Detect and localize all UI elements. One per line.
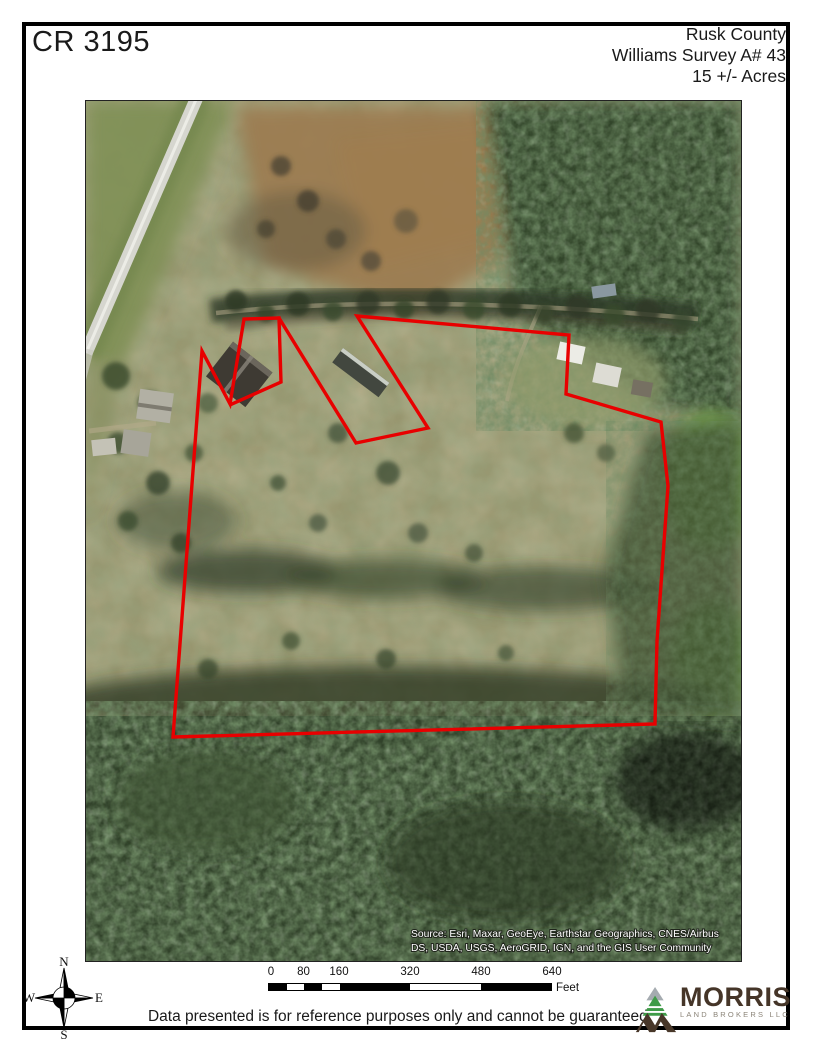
survey-exhibit-page: CR 3195 Rusk County Williams Survey A# 4… bbox=[0, 0, 816, 1056]
scale-bar-labels: 0 80 160 320 480 640 bbox=[268, 966, 568, 981]
survey-label: Williams Survey A# 43 bbox=[612, 45, 786, 66]
attribution-line-2: DS, USDA, USGS, AeroGRID, IGN, and the G… bbox=[411, 943, 712, 954]
forest-right-lower bbox=[606, 421, 741, 721]
forest-bottom bbox=[86, 701, 741, 961]
logo-subtitle: LAND BROKERS LLC bbox=[680, 1010, 791, 1019]
building-small-house bbox=[120, 429, 151, 457]
page-title: CR 3195 bbox=[32, 26, 150, 59]
aerial-map-canvas: Source: Esri, Maxar, GeoEye, Earthstar G… bbox=[86, 101, 741, 961]
disclaimer-text: Data presented is for reference purposes… bbox=[120, 1008, 680, 1026]
compass-w-label: W bbox=[25, 990, 36, 1005]
compass-n-label: N bbox=[59, 956, 69, 969]
mountain-trees-icon bbox=[634, 986, 678, 1034]
attribution-line-1: Source: Esri, Maxar, GeoEye, Earthstar G… bbox=[411, 929, 719, 940]
building-gray-house bbox=[136, 389, 174, 423]
header-info: Rusk County Williams Survey A# 43 15 +/-… bbox=[612, 24, 786, 87]
scale-label-480: 480 bbox=[471, 966, 490, 978]
scale-unit-label: Feet bbox=[556, 982, 579, 994]
scale-label-80: 80 bbox=[297, 966, 310, 978]
logo-name: MORRIS bbox=[680, 984, 791, 1010]
scale-label-640: 640 bbox=[542, 966, 561, 978]
compass-e-label: E bbox=[95, 990, 103, 1005]
scale-label-320: 320 bbox=[400, 966, 419, 978]
acreage-label: 15 +/- Acres bbox=[612, 66, 786, 87]
scale-bar: 0 80 160 320 480 640 Feet bbox=[268, 966, 568, 1002]
compass-s-label: S bbox=[60, 1027, 67, 1040]
building-shed-west bbox=[91, 438, 117, 456]
scale-bar-graphic bbox=[268, 983, 552, 991]
aerial-map[interactable]: Source: Esri, Maxar, GeoEye, Earthstar G… bbox=[85, 100, 742, 962]
logo-words: MORRIS LAND BROKERS LLC bbox=[680, 984, 791, 1019]
scale-label-0: 0 bbox=[268, 966, 274, 978]
north-arrow: N S E W bbox=[25, 956, 103, 1040]
broker-logo: MORRIS LAND BROKERS LLC bbox=[634, 984, 792, 1036]
county-label: Rusk County bbox=[612, 24, 786, 45]
scale-label-160: 160 bbox=[329, 966, 348, 978]
